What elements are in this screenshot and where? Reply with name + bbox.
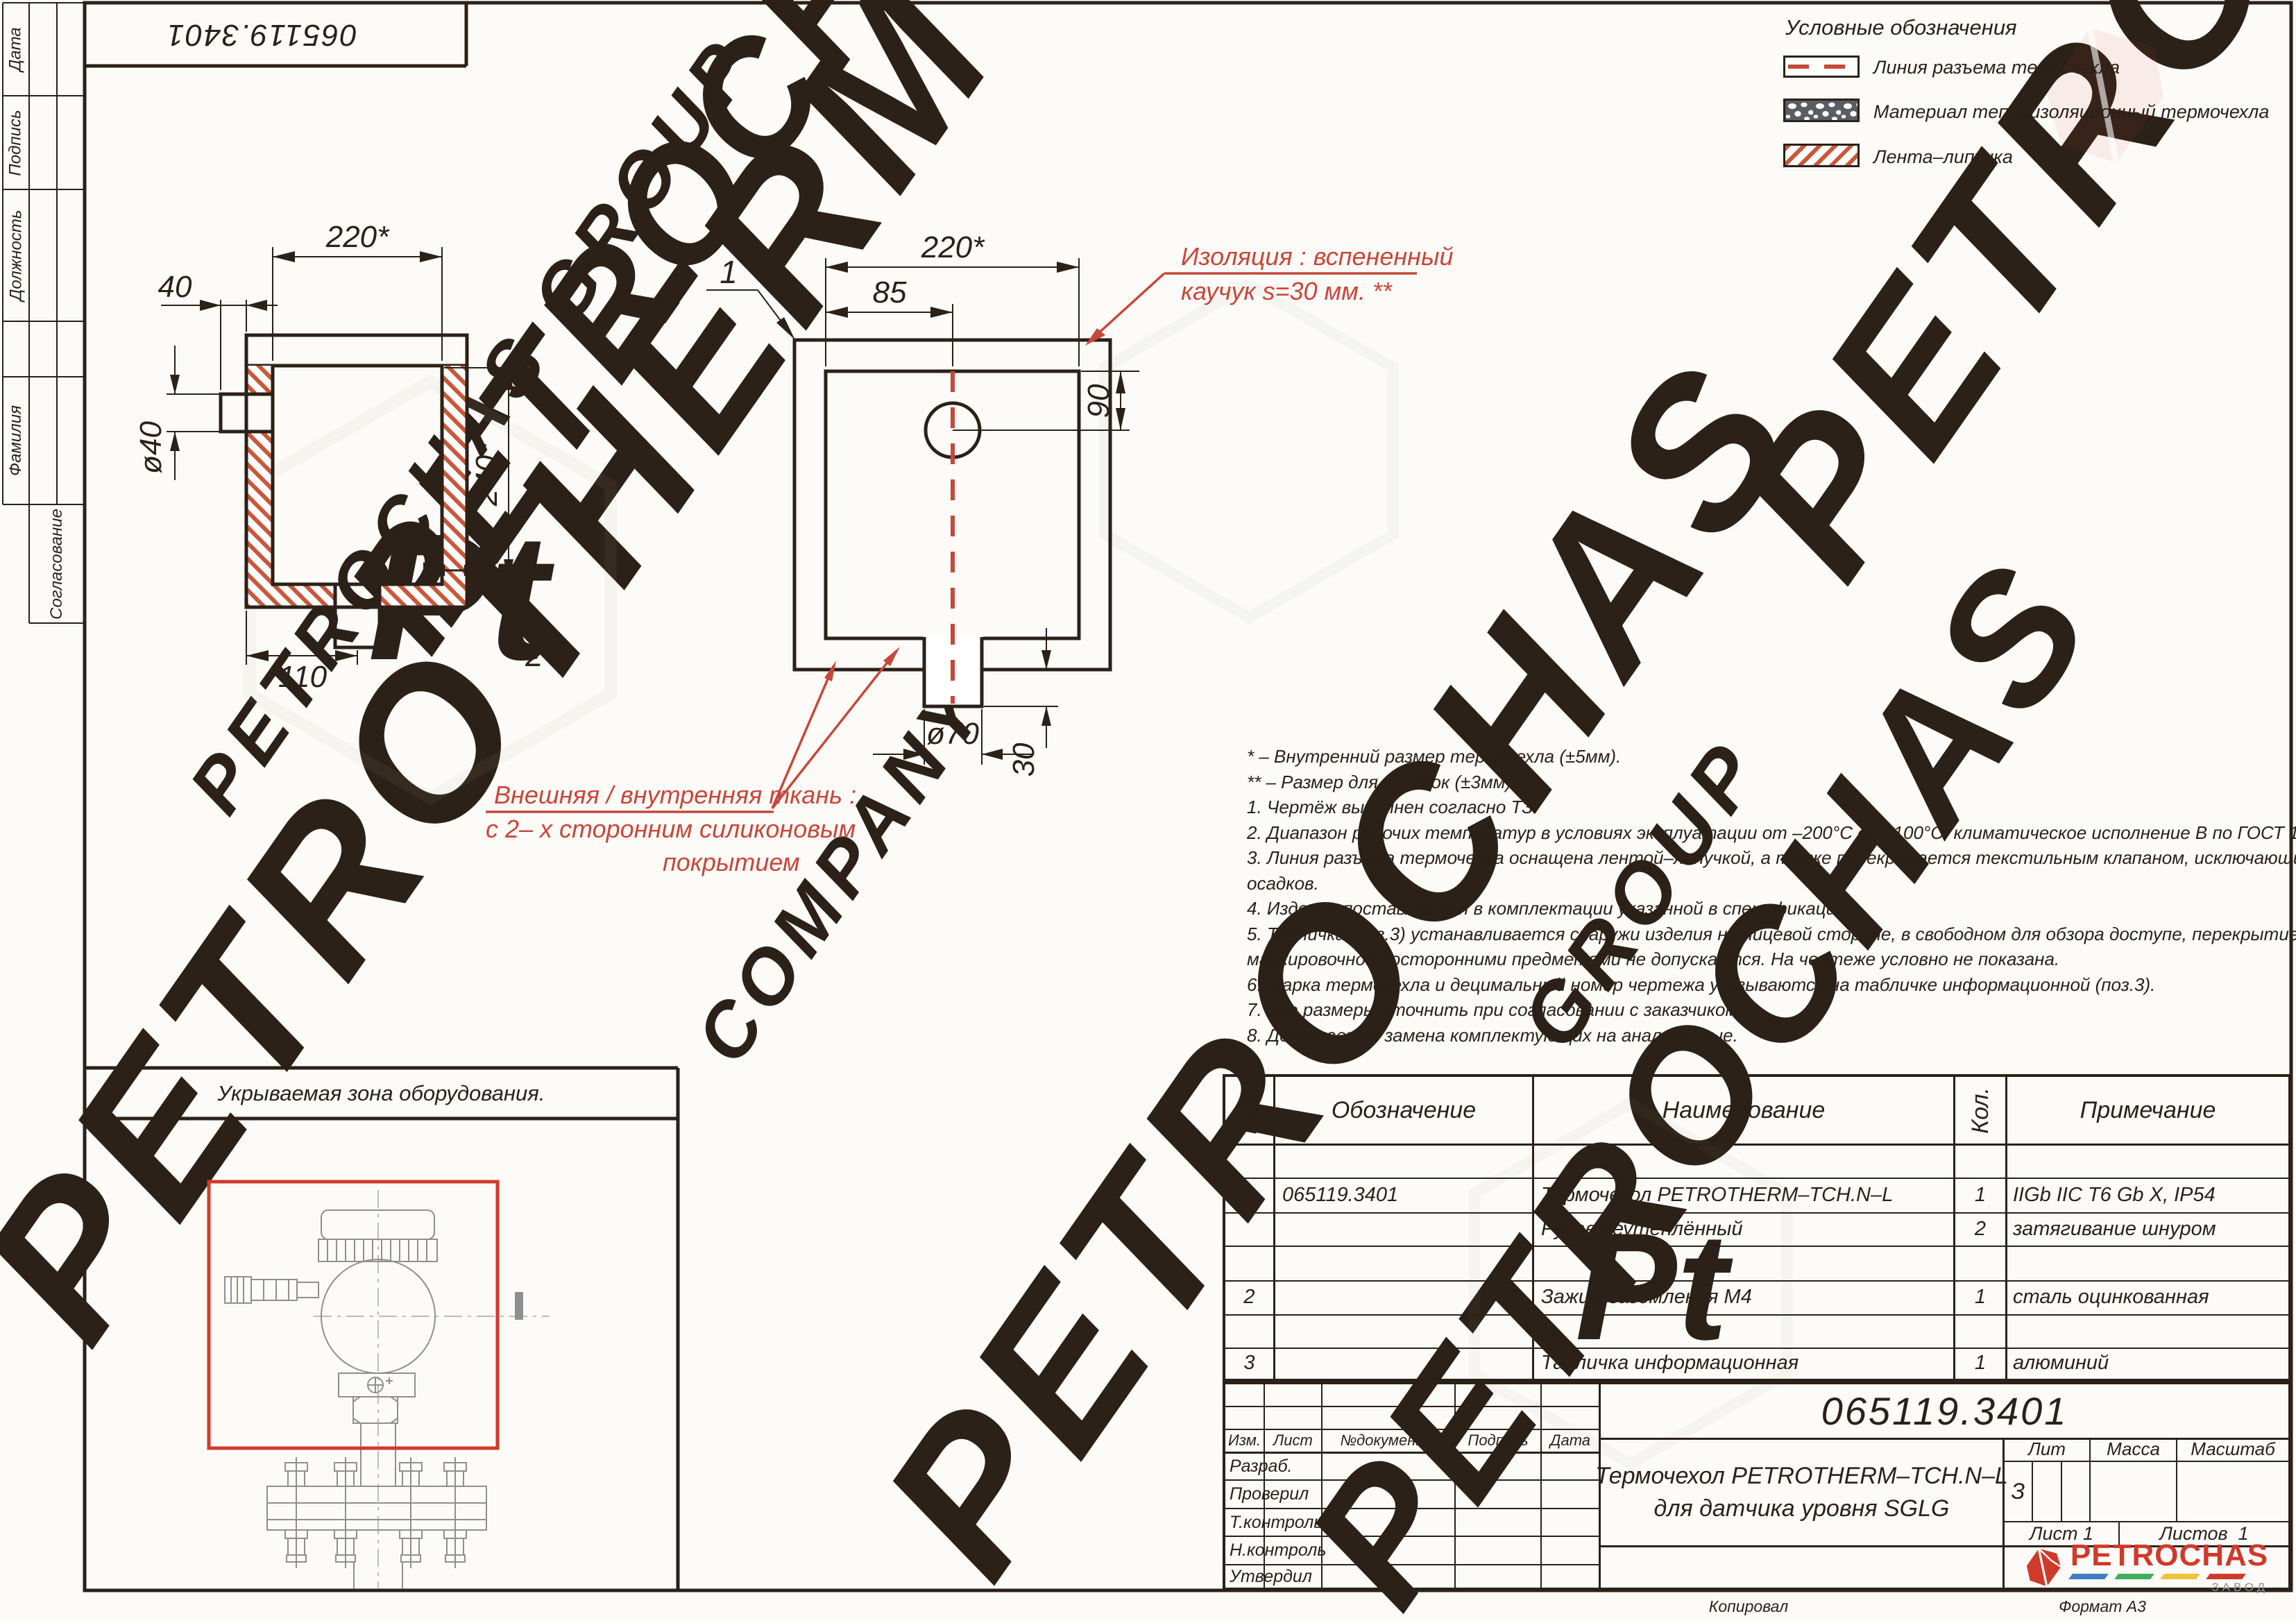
side-label-date: Дата [3, 3, 29, 96]
dim-220-right: 220* [921, 230, 985, 264]
tb-lit-value: З [2005, 1462, 2032, 1521]
tb-col-list: Лист [1265, 1429, 1321, 1452]
spec-cell-code: 065119.3401 [1275, 1178, 1532, 1212]
footer-format: Формат А3 [2026, 1595, 2179, 1618]
notes-block: * – Внутренний размер термочехла (±5мм).… [1247, 744, 2288, 1048]
tb-row-tcontrol: Т.контроль [1230, 1509, 1320, 1536]
side-label-approval: Согласование [29, 504, 85, 623]
tb-lit-label: Лит [2005, 1438, 2089, 1461]
dim-90: 90 [1082, 384, 1116, 418]
tb-row-checked: Проверил [1230, 1481, 1320, 1508]
petrochas-crystal-icon [2025, 1547, 2064, 1588]
note-line: осадков. [1247, 871, 2288, 897]
equipment-zone-title: Укрываемая зона оборудования. [85, 1068, 678, 1119]
spec-header-pos: Поз. [1225, 1077, 1273, 1144]
tb-col-doc: №документа [1323, 1429, 1454, 1452]
drawing-sheet: PETROTHERM PETROCHAS GROUP PETROCHAS COM… [0, 0, 2296, 1623]
dim-30: 30 [1007, 742, 1041, 776]
dim-240: 240* [470, 442, 504, 507]
note-line: 6. Марка термочехла и децимальный номер … [1247, 972, 2288, 998]
spec-cell-pos: 1 [1225, 1178, 1273, 1212]
logo-subtitle: ЗАВОД [2070, 1581, 2268, 1595]
dim-85: 85 [873, 275, 907, 309]
spec-cell-note: IIGb IIC T6 Gb X, IP54 [2007, 1178, 2288, 1212]
spec-table: Поз. Обозначение Наименование Кол. Приме… [1223, 1074, 2291, 1382]
tb-doc-number: 065119.3401 [1601, 1384, 2288, 1438]
thermal-cover-front-view: 1 220* 85 90 30 [706, 230, 1139, 776]
legend-swatch-velcro [1783, 144, 1860, 167]
spec-cell-name: Рукав неутеплённый [1534, 1212, 1953, 1246]
spec-cell-qty: 1 [1955, 1348, 2005, 1379]
insulation-text-line2: каучук s=30 мм. ** [1181, 277, 1393, 305]
callout-1: 1 [720, 254, 738, 290]
spec-header-code: Обозначение [1275, 1077, 1532, 1144]
thermal-cover-section-view: 2 220* 40 ø40 [134, 220, 543, 694]
tb-name: Термочехол PETROTHERM–TCH.N–L для датчик… [1601, 1440, 2002, 1545]
spec-header-name: Наименование [1534, 1077, 1953, 1144]
spec-header-qty: Кол. [1955, 1077, 2005, 1144]
spec-cell-pos: 3 [1225, 1348, 1273, 1379]
level-sensor-drawing [209, 1182, 550, 1589]
side-label-signature: Подпись [3, 96, 29, 189]
dim-220-left: 220* [325, 220, 390, 254]
spec-cell-note: алюминий [2007, 1348, 2288, 1379]
legend-swatch-parting-line [1783, 56, 1860, 78]
side-label-surname: Фамилия [3, 377, 29, 504]
note-line: 5. Табличка (поз.3) устанавливается снар… [1247, 921, 2288, 947]
note-line: 7. Все размеры уточнить при согласовании… [1247, 997, 2288, 1023]
spec-header-note: Примечание [2007, 1077, 2288, 1144]
tb-col-sign: Подпись [1456, 1429, 1540, 1452]
spec-cell-qty: 1 [1955, 1280, 2005, 1314]
petrochas-logo: PETROCHAS ЗАВОД [2005, 1547, 2288, 1588]
note-line: 1. Чертёж выполнен согласно ТЗ. [1247, 794, 2288, 820]
note-line: * – Внутренний размер термочехла (±5мм). [1247, 744, 2288, 770]
fabric-text-line3: покрытием [663, 848, 800, 876]
footer-copied: Копировал [1672, 1595, 1825, 1618]
fabric-annotation: Внешняя / внутренняя ткань : с 2– х стор… [486, 647, 900, 876]
fabric-text-line2: с 2– х сторонним силиконовым [486, 815, 856, 843]
legend-label: Лента–липучка [1873, 146, 2013, 168]
note-line: 2. Диапазон рабочих температур в условия… [1247, 820, 2288, 846]
logo-text: PETROCHAS [2070, 1540, 2268, 1571]
logo-stripes [2070, 1574, 2268, 1579]
stamp-number: 065119.3401 [166, 17, 357, 52]
dim-d70: ø70 [926, 717, 979, 751]
legend-swatch-foam [1783, 99, 1860, 122]
tb-mass-label: Масса [2091, 1438, 2176, 1461]
dashed-line-icon [1788, 65, 1855, 69]
note-line: ** – Размер для справок (±3мм). [1247, 770, 2288, 795]
tb-col-izm: Изм. [1225, 1429, 1264, 1452]
note-line: 3. Линия разъема термочехла оснащена лен… [1247, 845, 2288, 871]
tb-row-approved: Утвердил [1230, 1565, 1320, 1588]
dim-d40: ø40 [134, 421, 168, 474]
tb-row-developed: Разраб. [1230, 1454, 1320, 1479]
dim-40: 40 [158, 270, 192, 304]
legend-label: Материал теплоизоляционный термочехла [1873, 101, 2269, 123]
title-block: Изм. Лист №документа Подпись Дата Разраб… [1223, 1382, 2291, 1590]
callout-2: 2 [525, 637, 543, 673]
insulation-text-line1: Изоляция : вспененный [1181, 242, 1453, 271]
note-line: 4. Изделие поставляется в комплектации у… [1247, 896, 2288, 921]
note-line: 8. Допускается замена комплектующих на а… [1247, 1023, 2288, 1048]
note-line: маркировочной посторонними предметами не… [1247, 946, 2288, 972]
insulation-annotation: Изоляция : вспененный каучук s=30 мм. ** [1085, 242, 1453, 346]
spec-cell-name: Табличка информационная [1534, 1348, 1953, 1379]
spec-cell-name: Термочехол PETROTHERM–TCH.N–L [1534, 1178, 1953, 1212]
side-label-position: Должность [3, 189, 29, 321]
tb-scale-label: Масштаб [2177, 1438, 2288, 1461]
tb-row-ncontrol: Н.контроль [1230, 1537, 1320, 1564]
spec-cell-qty: 2 [1955, 1212, 2005, 1246]
dim-110: 110 [278, 660, 328, 694]
spec-cell-note: затягивание шнуром [2007, 1212, 2288, 1246]
legend-title: Условные обозначения [1785, 15, 2017, 40]
spec-cell-pos: 2 [1225, 1280, 1273, 1314]
spec-cell-name: Зажим заземления М4 [1534, 1280, 1953, 1314]
fabric-text-line1: Внешняя / внутренняя ткань : [494, 781, 856, 809]
spec-cell-note: сталь оцинкованная [2007, 1280, 2288, 1314]
spec-cell-qty: 1 [1955, 1178, 2005, 1212]
stamp-number-box: 065119.3401 [85, 3, 466, 66]
legend-label: Линия разъема термочехла [1873, 57, 2120, 78]
tb-col-date: Дата [1542, 1429, 1599, 1452]
